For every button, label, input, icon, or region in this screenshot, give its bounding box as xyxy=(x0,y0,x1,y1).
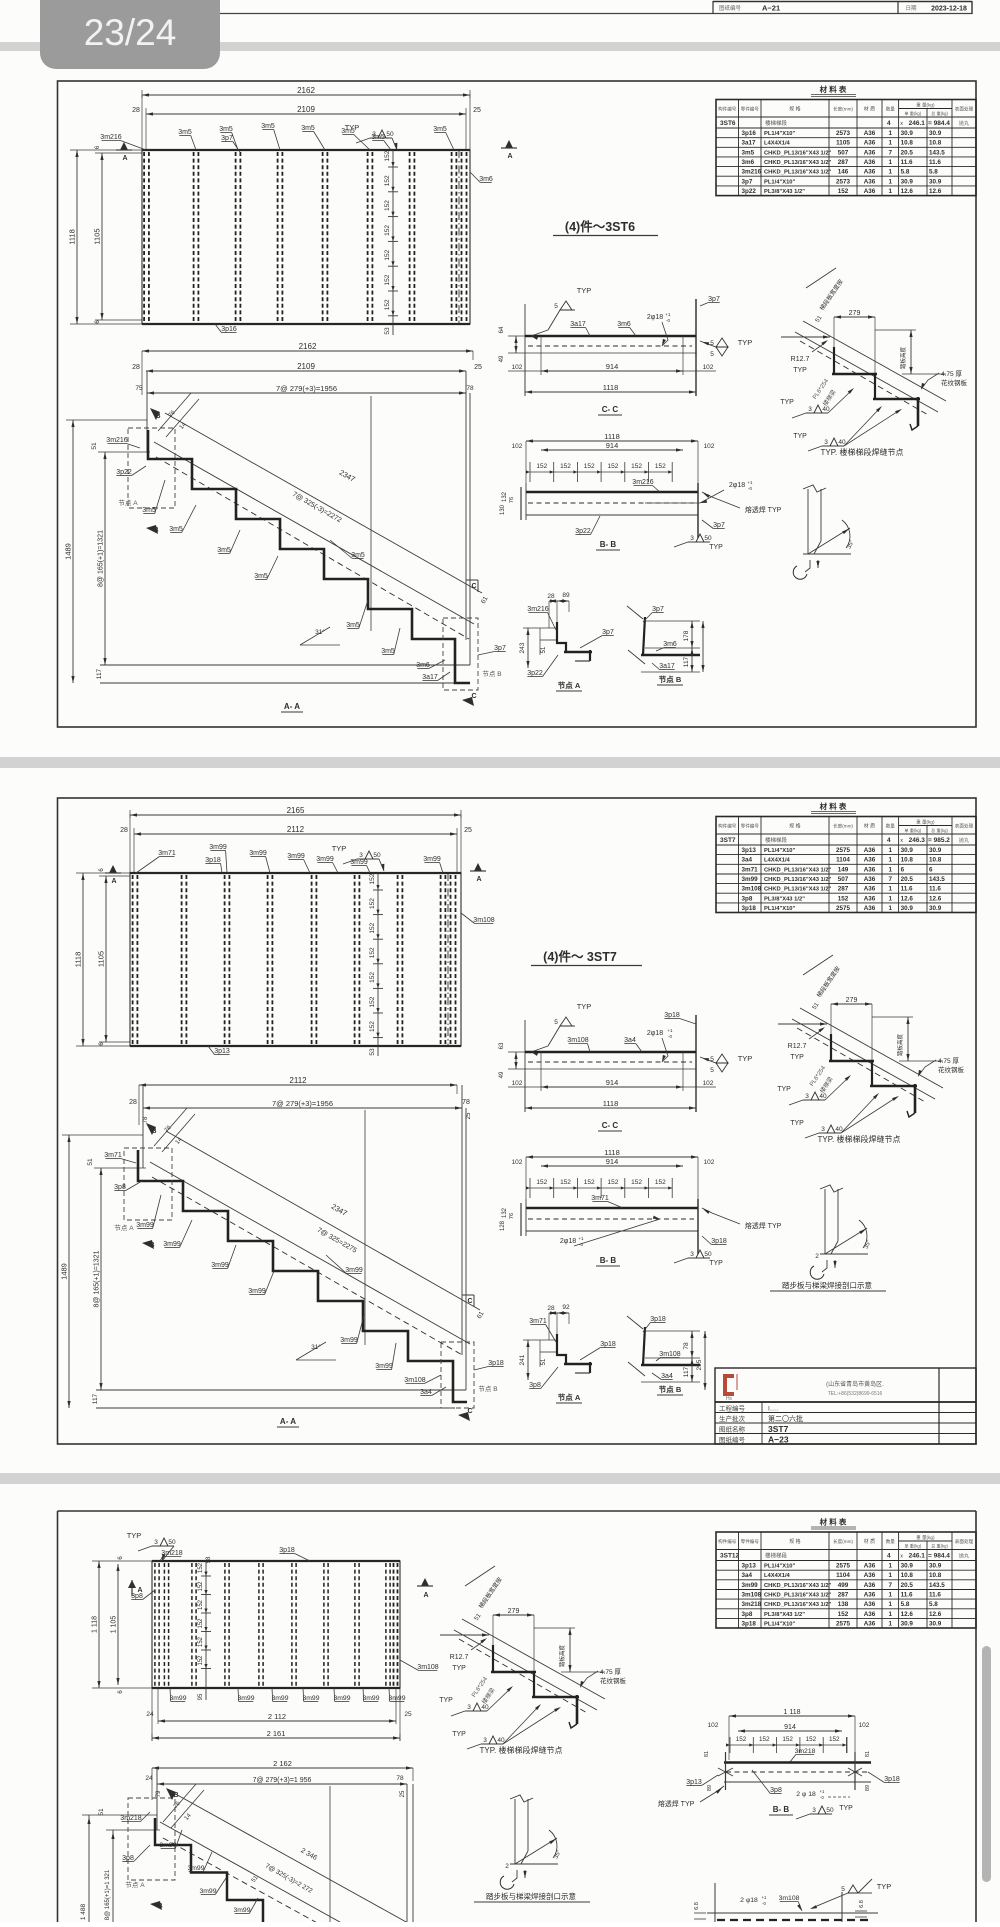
svg-text:914: 914 xyxy=(606,1078,619,1087)
svg-text:2575: 2575 xyxy=(836,1621,851,1628)
svg-text:3m218: 3m218 xyxy=(161,1550,183,1557)
svg-text:2 162: 2 162 xyxy=(273,1759,292,1768)
svg-text:B- B: B- B xyxy=(773,1805,790,1814)
svg-text:CHKD_PL13/16"X43 1/2": CHKD_PL13/16"X43 1/2" xyxy=(764,1583,832,1589)
svg-text:5: 5 xyxy=(710,351,714,358)
svg-text:143.5: 143.5 xyxy=(929,1582,945,1589)
svg-text:241: 241 xyxy=(519,1354,526,1365)
svg-text:TYP: TYP xyxy=(793,433,807,440)
svg-text:踏步板与梯梁焊接剖口示意: 踏步板与梯梁焊接剖口示意 xyxy=(782,1280,872,1290)
svg-text:7: 7 xyxy=(889,876,893,883)
svg-text:81: 81 xyxy=(865,1751,871,1757)
svg-text:构件编号: 构件编号 xyxy=(718,106,737,113)
svg-text:图纸名称: 图纸名称 xyxy=(719,1425,746,1434)
svg-text:TYP: TYP xyxy=(793,367,807,374)
svg-text:2573: 2573 xyxy=(836,178,851,185)
svg-text:规 格: 规 格 xyxy=(789,1538,800,1545)
svg-text:图纸编号: 图纸编号 xyxy=(719,1435,746,1444)
svg-text:图纸编号: 图纸编号 xyxy=(719,4,742,12)
svg-text:材 质: 材 质 xyxy=(864,1538,875,1545)
svg-text:规 格: 规 格 xyxy=(789,106,800,113)
svg-text:78: 78 xyxy=(143,1116,149,1123)
svg-text:152: 152 xyxy=(369,996,376,1007)
svg-text:TYP: TYP xyxy=(452,1731,466,1738)
svg-text:构件编号: 构件编号 xyxy=(718,823,737,830)
svg-text:152: 152 xyxy=(655,463,666,470)
svg-text:3p18: 3p18 xyxy=(600,1341,616,1348)
svg-text:3m99: 3m99 xyxy=(287,853,305,860)
svg-text:+1: +1 xyxy=(747,480,753,485)
svg-text:30.9: 30.9 xyxy=(901,1621,914,1628)
svg-text:178: 178 xyxy=(683,630,690,641)
svg-text:78: 78 xyxy=(396,1775,404,1782)
svg-text:152: 152 xyxy=(369,873,376,884)
svg-text:TYP: TYP xyxy=(738,1054,753,1063)
svg-text:1: 1 xyxy=(889,1601,893,1608)
svg-text:3a17: 3a17 xyxy=(570,321,586,328)
svg-text:3m99: 3m99 xyxy=(248,1288,266,1295)
svg-text:78: 78 xyxy=(683,1342,690,1350)
svg-text:C: C xyxy=(471,583,476,590)
svg-text:A36: A36 xyxy=(864,178,876,185)
svg-text:节点 A: 节点 A xyxy=(558,1392,581,1402)
svg-text:3p8: 3p8 xyxy=(114,1184,126,1191)
svg-text:A36: A36 xyxy=(864,1582,876,1589)
svg-text:92: 92 xyxy=(562,1304,570,1311)
svg-text:149: 149 xyxy=(838,866,849,873)
svg-text:总 重(kg): 总 重(kg) xyxy=(931,1543,948,1549)
svg-text:PL3/8"X43 1/2": PL3/8"X43 1/2" xyxy=(764,1612,805,1618)
svg-text:1104: 1104 xyxy=(836,1572,850,1579)
svg-text:4.75 厚: 4.75 厚 xyxy=(938,1057,959,1065)
svg-text:-0: -0 xyxy=(666,318,670,323)
svg-text:3m99: 3m99 xyxy=(302,1695,319,1702)
svg-text:4.75 厚: 4.75 厚 xyxy=(941,370,962,378)
svg-text:3m108: 3m108 xyxy=(417,1664,439,1671)
svg-text:3p18: 3p18 xyxy=(488,1360,504,1367)
svg-text:1 118: 1 118 xyxy=(92,1616,99,1633)
svg-text:25: 25 xyxy=(466,1112,472,1119)
svg-text:2109: 2109 xyxy=(297,362,315,371)
svg-text:3p8: 3p8 xyxy=(742,895,753,902)
svg-text:3p18: 3p18 xyxy=(742,905,757,912)
svg-text:3: 3 xyxy=(690,1251,694,1258)
svg-text:914: 914 xyxy=(606,441,619,450)
svg-text:工程编号: 工程编号 xyxy=(719,1404,746,1413)
svg-text:C- C: C- C xyxy=(602,1121,619,1130)
svg-text:3p18: 3p18 xyxy=(205,857,221,864)
svg-text:表面处理: 表面处理 xyxy=(955,823,974,830)
svg-text:28: 28 xyxy=(547,593,555,600)
svg-text:25: 25 xyxy=(473,107,481,114)
svg-text:5.8: 5.8 xyxy=(929,169,938,176)
svg-text:PL3/8"X43 1/2": PL3/8"X43 1/2" xyxy=(764,189,805,195)
svg-text:5: 5 xyxy=(710,1056,714,1063)
svg-text:279: 279 xyxy=(846,997,858,1004)
svg-text:2φ18: 2φ18 xyxy=(560,1238,576,1245)
svg-text:2162: 2162 xyxy=(299,342,317,351)
svg-text:2109: 2109 xyxy=(297,105,315,114)
svg-text:CHKD_PL13/16"X43 1/2": CHKD_PL13/16"X43 1/2" xyxy=(764,150,832,156)
svg-text:A−21: A−21 xyxy=(762,4,780,13)
svg-text:3p8: 3p8 xyxy=(131,1593,143,1600)
svg-text:3: 3 xyxy=(483,1737,487,1744)
svg-text:节点 B: 节点 B xyxy=(482,670,501,678)
svg-text:89: 89 xyxy=(707,1785,713,1791)
svg-text:1118: 1118 xyxy=(74,952,83,968)
svg-text:+1: +1 xyxy=(665,312,671,317)
svg-text:20.5: 20.5 xyxy=(901,876,914,883)
svg-text:11.6: 11.6 xyxy=(929,886,941,893)
svg-text:CHKD_PL13/16"X43 1/2": CHKD_PL13/16"X43 1/2" xyxy=(764,1593,832,1599)
svg-text:1: 1 xyxy=(889,140,893,147)
svg-text:152: 152 xyxy=(384,249,391,260)
svg-text:1118: 1118 xyxy=(603,1099,619,1108)
svg-text:152: 152 xyxy=(536,1179,547,1186)
svg-text:花纹钢板: 花纹钢板 xyxy=(600,1676,627,1685)
svg-text:3p7: 3p7 xyxy=(713,522,725,529)
svg-text:1: 1 xyxy=(889,1611,893,1618)
svg-text:2575: 2575 xyxy=(836,847,851,854)
svg-text:117: 117 xyxy=(683,656,690,667)
svg-text:12.6: 12.6 xyxy=(929,895,942,902)
svg-text:76: 76 xyxy=(509,1213,515,1219)
svg-text:7@ 279(+3)=1956: 7@ 279(+3)=1956 xyxy=(276,384,337,393)
svg-text:A36: A36 xyxy=(864,886,876,893)
svg-text:5: 5 xyxy=(554,1019,558,1026)
svg-text:117: 117 xyxy=(96,668,103,679)
svg-text:12.6: 12.6 xyxy=(901,1611,914,1618)
svg-text:98: 98 xyxy=(206,1556,212,1563)
svg-text:表面处理: 表面处理 xyxy=(955,1538,974,1545)
svg-text:50: 50 xyxy=(826,1807,834,1814)
svg-text:152: 152 xyxy=(369,1021,376,1032)
svg-text:2573: 2573 xyxy=(836,130,851,137)
svg-text:3m99: 3m99 xyxy=(237,1695,254,1702)
svg-text:B- B: B- B xyxy=(600,1256,617,1265)
svg-text:3p8: 3p8 xyxy=(122,1855,134,1862)
svg-text:2φ18: 2φ18 xyxy=(729,482,745,489)
svg-text:2162: 2162 xyxy=(297,86,315,95)
svg-text:3: 3 xyxy=(690,535,694,542)
svg-text:1118: 1118 xyxy=(68,229,77,245)
svg-text:152: 152 xyxy=(198,1599,204,1610)
svg-text:5.8: 5.8 xyxy=(901,1601,910,1608)
svg-text:熔透焊 TYP: 熔透焊 TYP xyxy=(745,505,782,514)
svg-text:A36: A36 xyxy=(864,895,876,902)
svg-text:143.5: 143.5 xyxy=(929,876,945,883)
svg-text:3m99: 3m99 xyxy=(345,1267,363,1274)
svg-text:3m5: 3m5 xyxy=(301,125,315,132)
svg-text:3m5: 3m5 xyxy=(142,507,156,514)
svg-text:A36: A36 xyxy=(864,1563,876,1570)
svg-text:3a4: 3a4 xyxy=(742,857,753,864)
svg-text:TYP: TYP xyxy=(709,1260,723,1267)
svg-text:3m99: 3m99 xyxy=(375,1363,393,1370)
svg-text:+1: +1 xyxy=(667,1028,673,1033)
svg-text:117: 117 xyxy=(683,1366,690,1377)
svg-text:3p18: 3p18 xyxy=(650,1316,666,1323)
svg-text:132: 132 xyxy=(502,1207,508,1218)
svg-text:PL1/4"X10": PL1/4"X10" xyxy=(764,1564,796,1570)
svg-text:抛丸: 抛丸 xyxy=(959,1553,969,1560)
svg-text:3m99: 3m99 xyxy=(423,856,441,863)
svg-text:3m108: 3m108 xyxy=(404,1377,426,1384)
svg-text:节点 B: 节点 B xyxy=(659,1384,682,1394)
svg-text:4: 4 xyxy=(887,1553,891,1560)
svg-text:50: 50 xyxy=(386,131,394,138)
svg-text:3a17: 3a17 xyxy=(659,663,675,670)
svg-text:第二〇六批: 第二〇六批 xyxy=(768,1414,803,1423)
svg-text:长度(mm): 长度(mm) xyxy=(833,823,853,830)
svg-text:51: 51 xyxy=(98,1808,105,1816)
svg-text:11.6: 11.6 xyxy=(901,886,913,893)
svg-text:总 重(kg): 总 重(kg) xyxy=(931,827,948,833)
svg-text:3m218: 3m218 xyxy=(795,1748,816,1755)
svg-text:CHKD_PL13/16"X43 1/2": CHKD_PL13/16"X43 1/2" xyxy=(764,887,832,893)
svg-text:30.9: 30.9 xyxy=(929,847,942,854)
svg-text:重 量(kg): 重 量(kg) xyxy=(916,1534,935,1541)
svg-text:2575: 2575 xyxy=(836,1563,851,1570)
svg-text:3m99: 3m99 xyxy=(362,1695,379,1702)
svg-text:3m99: 3m99 xyxy=(742,1582,759,1589)
svg-text:3ST12: 3ST12 xyxy=(720,1553,740,1560)
svg-text:A−23: A−23 xyxy=(768,1435,789,1445)
svg-text:3m99: 3m99 xyxy=(187,1865,204,1872)
svg-text:3ST6: 3ST6 xyxy=(720,120,736,127)
svg-text:6: 6 xyxy=(929,866,933,873)
svg-text:3m108: 3m108 xyxy=(742,1592,762,1599)
svg-text:A36: A36 xyxy=(864,876,876,883)
svg-text:64: 64 xyxy=(499,326,505,333)
svg-text:51: 51 xyxy=(87,1158,94,1166)
svg-text:(4)件～ 3ST7: (4)件～ 3ST7 xyxy=(543,949,617,964)
svg-text:TYP: TYP xyxy=(780,399,794,406)
svg-text:CHKD_PL13/16"X43 1/2": CHKD_PL13/16"X43 1/2" xyxy=(764,160,832,166)
svg-text:A36: A36 xyxy=(864,1601,876,1608)
svg-text:3m5: 3m5 xyxy=(433,126,447,133)
svg-text:重 量(kg): 重 量(kg) xyxy=(916,102,935,109)
svg-text:89: 89 xyxy=(562,592,570,599)
svg-text:2φ18: 2φ18 xyxy=(647,314,663,321)
svg-text:3m99: 3m99 xyxy=(163,1241,181,1248)
svg-text:11.6: 11.6 xyxy=(901,1592,913,1599)
svg-text:30.9: 30.9 xyxy=(901,178,914,185)
svg-text:数量: 数量 xyxy=(886,106,896,113)
svg-text:生产批次: 生产批次 xyxy=(719,1414,746,1423)
svg-text:楼梯梯段: 楼梯梯段 xyxy=(765,836,788,844)
svg-text:1: 1 xyxy=(889,159,893,166)
svg-text:3m99: 3m99 xyxy=(199,1888,216,1895)
svg-text:152: 152 xyxy=(607,1179,618,1186)
svg-text:6: 6 xyxy=(901,866,905,873)
svg-text:152: 152 xyxy=(631,463,642,470)
svg-text:3m216: 3m216 xyxy=(527,606,549,613)
svg-text:Hs: Hs xyxy=(726,1396,733,1402)
svg-text:A36: A36 xyxy=(864,169,876,176)
svg-text:3p18: 3p18 xyxy=(664,1012,680,1019)
svg-text:30.9: 30.9 xyxy=(901,905,914,912)
svg-text:152: 152 xyxy=(384,274,391,285)
svg-text:2 φ 18: 2 φ 18 xyxy=(796,1791,816,1798)
svg-text:3: 3 xyxy=(359,852,363,859)
svg-text:8@ 165(+1)=1 321: 8@ 165(+1)=1 321 xyxy=(105,1869,111,1920)
svg-text:3p18: 3p18 xyxy=(884,1776,900,1783)
svg-text:24: 24 xyxy=(146,1711,154,1718)
svg-text:长度(mm): 长度(mm) xyxy=(833,106,853,113)
svg-text:CHKD_PL13/16"X43 1/2": CHKD_PL13/16"X43 1/2" xyxy=(764,877,832,883)
svg-text:L4X4X1/4: L4X4X1/4 xyxy=(764,1573,791,1579)
svg-text:3a17: 3a17 xyxy=(742,140,757,147)
svg-text:914: 914 xyxy=(784,1724,796,1731)
svg-text:抛丸: 抛丸 xyxy=(959,120,969,127)
svg-text:30.9: 30.9 xyxy=(929,1621,942,1628)
svg-text:1105: 1105 xyxy=(836,140,850,147)
svg-text:零件编号: 零件编号 xyxy=(741,823,760,830)
svg-text:3m71: 3m71 xyxy=(591,1195,609,1202)
svg-text:熔透焊 TYP: 熔透焊 TYP xyxy=(658,1799,695,1808)
svg-text:(山东省青岛市黄岛区.: (山东省青岛市黄岛区. xyxy=(826,1380,884,1388)
svg-text:材 质: 材 质 xyxy=(864,823,875,830)
svg-text:914: 914 xyxy=(606,362,619,371)
svg-text:3m99: 3m99 xyxy=(159,1842,176,1849)
svg-text:3: 3 xyxy=(808,406,812,413)
svg-text:+1: +1 xyxy=(578,1236,584,1241)
svg-text:51: 51 xyxy=(541,646,547,653)
svg-text:143.5: 143.5 xyxy=(929,149,945,156)
svg-text:-0: -0 xyxy=(820,1795,824,1800)
svg-text:3m99: 3m99 xyxy=(233,1907,250,1914)
svg-text:8@ 165(+1)=1321: 8@ 165(+1)=1321 xyxy=(98,530,105,587)
svg-text:熔透焊 TYP: 熔透焊 TYP xyxy=(745,1221,782,1230)
svg-text:3m99: 3m99 xyxy=(249,850,267,857)
svg-text:4: 4 xyxy=(887,120,891,127)
svg-text:243: 243 xyxy=(519,642,526,653)
svg-text:4: 4 xyxy=(887,837,891,844)
svg-text:1104: 1104 xyxy=(836,857,850,864)
svg-text:1 105: 1 105 xyxy=(111,1616,118,1634)
svg-text:1: 1 xyxy=(889,1563,893,1570)
svg-text:R12.7: R12.7 xyxy=(450,1654,469,1661)
svg-text:152: 152 xyxy=(736,1736,747,1743)
svg-text:节点 A: 节点 A xyxy=(558,680,581,690)
svg-text:3m5: 3m5 xyxy=(178,129,192,136)
svg-text:2112: 2112 xyxy=(287,825,305,834)
svg-text:95: 95 xyxy=(198,1693,204,1700)
svg-text:R12.7: R12.7 xyxy=(791,356,810,363)
svg-text:78: 78 xyxy=(466,385,474,392)
svg-text:踏步板与梯梁焊接剖口示意: 踏步板与梯梁焊接剖口示意 xyxy=(486,1891,576,1901)
svg-text:152: 152 xyxy=(369,898,376,909)
svg-text:PL1/4"X10": PL1/4"X10" xyxy=(764,1622,796,1628)
svg-text:152: 152 xyxy=(584,1179,595,1186)
svg-text:A36: A36 xyxy=(864,866,876,873)
svg-text:6.8: 6.8 xyxy=(859,1900,865,1908)
svg-text:1489: 1489 xyxy=(60,1263,69,1280)
svg-text:3p7: 3p7 xyxy=(602,629,614,636)
svg-text:3p8: 3p8 xyxy=(529,1382,541,1389)
svg-text:5: 5 xyxy=(710,1067,714,1074)
svg-text:50: 50 xyxy=(373,852,381,859)
svg-text:A36: A36 xyxy=(864,1621,876,1628)
svg-text:1105: 1105 xyxy=(93,228,102,244)
svg-text:A36: A36 xyxy=(864,188,876,195)
svg-text:材 料 表: 材 料 表 xyxy=(820,84,847,94)
svg-text:3m5: 3m5 xyxy=(219,126,233,133)
svg-text:152: 152 xyxy=(782,1736,793,1743)
svg-text:-0: -0 xyxy=(748,486,752,491)
svg-text:117: 117 xyxy=(92,1393,99,1404)
svg-text:10.8: 10.8 xyxy=(901,857,914,864)
svg-text:130: 130 xyxy=(500,504,506,515)
svg-text:TYP: TYP xyxy=(877,1882,892,1891)
svg-text:152: 152 xyxy=(384,299,391,310)
svg-text:1: 1 xyxy=(889,1592,893,1599)
svg-text:A: A xyxy=(122,155,127,162)
svg-text:10.8: 10.8 xyxy=(901,140,914,147)
svg-text:8@ 165(+1)=1321: 8@ 165(+1)=1321 xyxy=(94,1250,101,1307)
svg-text:2 112: 2 112 xyxy=(268,1712,286,1721)
svg-text:3: 3 xyxy=(824,439,828,446)
svg-text:152: 152 xyxy=(384,225,391,236)
svg-text:5: 5 xyxy=(554,303,558,310)
svg-text:12.6: 12.6 xyxy=(901,188,914,195)
svg-text:20.5: 20.5 xyxy=(901,1582,914,1589)
svg-text:1: 1 xyxy=(889,857,893,864)
svg-text:PL1/4"X10": PL1/4"X10" xyxy=(764,131,796,137)
svg-text:3m99: 3m99 xyxy=(169,1695,186,1702)
svg-text:3p8: 3p8 xyxy=(742,1611,753,1618)
svg-text:R12.7: R12.7 xyxy=(788,1043,807,1050)
svg-text:3m6: 3m6 xyxy=(617,321,631,328)
svg-text:152: 152 xyxy=(631,1179,642,1186)
svg-text:132: 132 xyxy=(502,491,508,502)
svg-text:507: 507 xyxy=(838,149,849,156)
svg-text:长度(mm): 长度(mm) xyxy=(833,1538,853,1545)
svg-text:材 质: 材 质 xyxy=(864,106,875,113)
svg-text:TEL:+86(532)8699-6516: TEL:+86(532)8699-6516 xyxy=(828,1391,883,1397)
svg-text:CHKD_PL13/16"X43 1/2": CHKD_PL13/16"X43 1/2" xyxy=(764,1602,832,1608)
svg-text:3m99: 3m99 xyxy=(271,1695,288,1702)
svg-text:30.9: 30.9 xyxy=(901,1563,914,1570)
svg-text:A36: A36 xyxy=(864,1611,876,1618)
svg-text:3m99: 3m99 xyxy=(742,876,759,883)
svg-text:102: 102 xyxy=(512,1159,523,1166)
svg-text:= 984.4: = 984.4 xyxy=(928,1553,950,1560)
svg-text:C: C xyxy=(467,1298,472,1305)
svg-text:A36: A36 xyxy=(864,857,876,864)
svg-text:152: 152 xyxy=(198,1618,204,1629)
svg-text:3m5: 3m5 xyxy=(742,149,755,156)
svg-text:7@ 279(+3)=1 956: 7@ 279(+3)=1 956 xyxy=(253,1777,312,1784)
svg-text:10.8: 10.8 xyxy=(929,1572,942,1579)
svg-text:TYP. 楼梯梯段焊缝节点: TYP. 楼梯梯段焊缝节点 xyxy=(818,1134,901,1144)
svg-text:11.6: 11.6 xyxy=(929,159,941,166)
svg-text:3m108: 3m108 xyxy=(473,917,495,924)
svg-text:L4X4X1/4: L4X4X1/4 xyxy=(764,858,791,864)
svg-text:152: 152 xyxy=(655,1179,666,1186)
svg-text:507: 507 xyxy=(838,876,849,883)
svg-text:102: 102 xyxy=(512,1080,523,1087)
svg-text:1 118: 1 118 xyxy=(784,1709,801,1716)
svg-text:295: 295 xyxy=(696,1359,703,1370)
svg-text:CHKD_PL13/16"X43 1/2": CHKD_PL13/16"X43 1/2" xyxy=(764,867,832,873)
svg-text:2φ18: 2φ18 xyxy=(647,1030,663,1037)
svg-text:1: 1 xyxy=(889,886,893,893)
svg-text:3m5: 3m5 xyxy=(169,526,183,533)
svg-text:49: 49 xyxy=(499,1071,505,1078)
svg-text:3ST7: 3ST7 xyxy=(768,1424,789,1434)
